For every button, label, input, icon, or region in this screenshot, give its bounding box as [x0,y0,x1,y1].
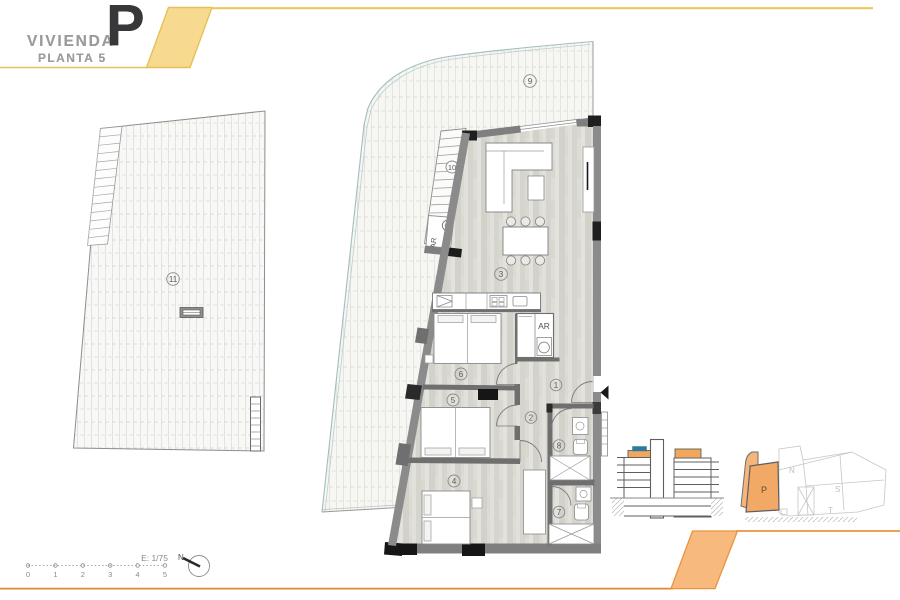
svg-text:P: P [761,485,767,495]
svg-text:3: 3 [499,270,504,279]
svg-text:N: N [178,553,184,562]
svg-text:6: 6 [459,370,464,379]
svg-text:8: 8 [557,442,562,451]
svg-text:1: 1 [53,570,57,579]
svg-text:5: 5 [163,570,167,579]
svg-text:10: 10 [448,163,456,172]
svg-text:3: 3 [108,570,112,579]
svg-text:AR: AR [538,321,550,331]
svg-text:4: 4 [452,477,457,486]
svg-text:T: T [828,506,833,515]
svg-text:7: 7 [557,508,562,517]
svg-text:0: 0 [26,570,30,579]
svg-text:S: S [835,485,840,494]
svg-text:1: 1 [554,381,559,390]
svg-text:4: 4 [136,570,140,579]
svg-text:2: 2 [81,570,85,579]
svg-text:5: 5 [451,396,456,405]
svg-text:11: 11 [169,275,178,284]
svg-text:E: 1/75: E: 1/75 [141,553,168,563]
svg-text:2: 2 [529,414,534,423]
svg-text:9: 9 [528,77,533,86]
svg-text:N: N [789,466,795,475]
